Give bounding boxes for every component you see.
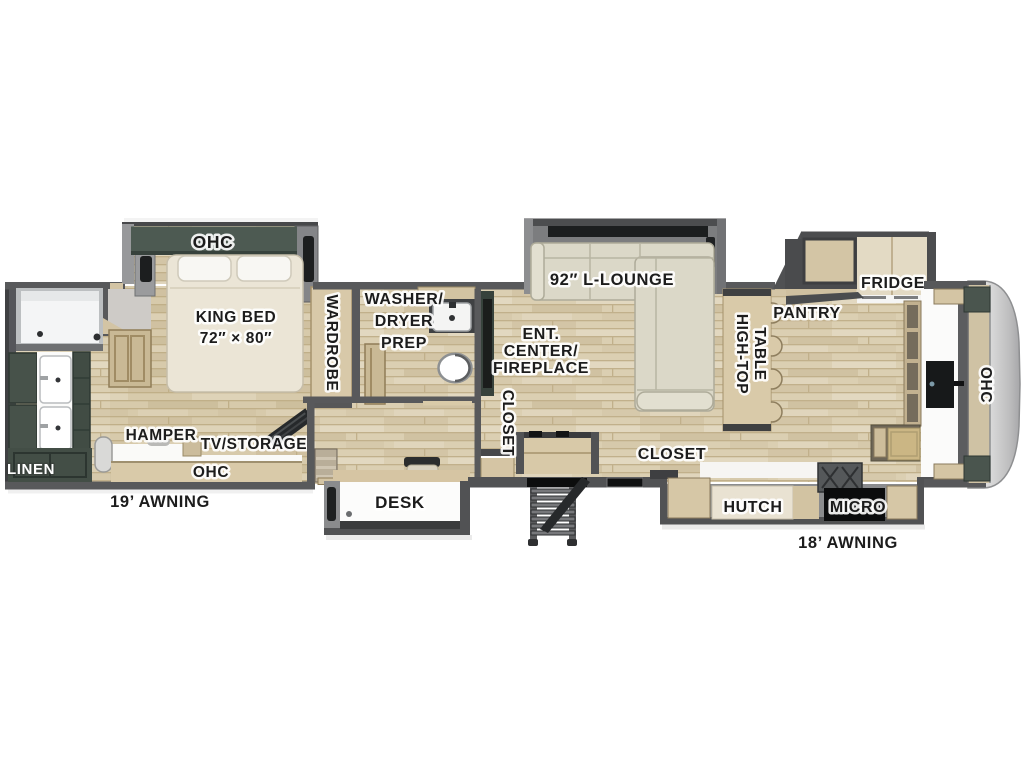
svg-text:WARDROBE: WARDROBE — [323, 295, 340, 392]
svg-text:HAMPER: HAMPER — [126, 427, 197, 444]
svg-text:PREP: PREP — [381, 335, 427, 352]
svg-text:KING BED: KING BED — [196, 309, 277, 326]
svg-text:OHC: OHC — [193, 464, 229, 481]
svg-text:HUTCH: HUTCH — [724, 499, 783, 516]
svg-text:FRIDGE: FRIDGE — [861, 275, 925, 292]
svg-text:LINEN: LINEN — [7, 461, 55, 478]
svg-text:CLOSET: CLOSET — [499, 390, 516, 456]
svg-text:72″ × 80″: 72″ × 80″ — [200, 330, 272, 347]
svg-text:ENT.: ENT. — [522, 326, 559, 343]
svg-text:WASHER/: WASHER/ — [365, 291, 444, 308]
svg-text:FIREPLACE: FIREPLACE — [493, 360, 589, 377]
svg-text:PANTRY: PANTRY — [773, 305, 841, 322]
svg-text:DESK: DESK — [375, 493, 425, 512]
svg-text:18’ AWNING: 18’ AWNING — [798, 534, 898, 552]
svg-text:92″ L-LOUNGE: 92″ L-LOUNGE — [550, 271, 674, 289]
svg-text:HIGH-TOP: HIGH-TOP — [733, 314, 750, 394]
svg-text:OHC: OHC — [193, 232, 234, 252]
svg-text:TABLE: TABLE — [751, 327, 768, 381]
svg-text:TV/STORAGE: TV/STORAGE — [201, 436, 307, 453]
svg-text:DRYER: DRYER — [375, 313, 433, 330]
svg-text:OHC: OHC — [977, 367, 994, 403]
svg-text:19’ AWNING: 19’ AWNING — [110, 493, 210, 511]
svg-text:MICRO: MICRO — [830, 499, 886, 516]
svg-text:CLOSET: CLOSET — [638, 446, 707, 463]
svg-text:CENTER/: CENTER/ — [504, 343, 578, 360]
